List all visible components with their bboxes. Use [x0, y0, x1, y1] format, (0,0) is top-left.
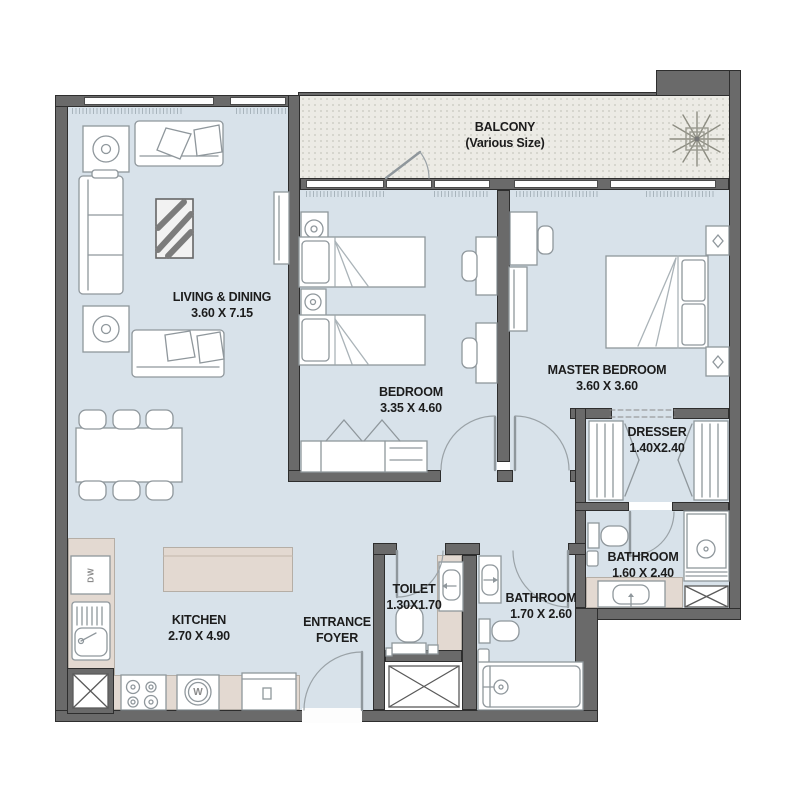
room-name: TOILET: [386, 581, 441, 597]
room-dimensions: (Various Size): [465, 135, 544, 151]
wall-right: [729, 70, 741, 620]
wall-dresser-bath-a: [575, 502, 629, 511]
wall-kitchen-shaft: [67, 668, 114, 714]
room-label-master-bedroom: MASTER BEDROOM 3.60 X 3.60: [548, 362, 667, 394]
window: [610, 180, 716, 188]
room-name: ENTRANCE: [303, 614, 371, 630]
wall-foyer-toilet: [373, 543, 385, 710]
wall-toilet-bath: [462, 555, 477, 710]
window-hatch: [646, 191, 716, 197]
room-name: MASTER BEDROOM: [548, 362, 667, 378]
floor-bathroom: [477, 543, 575, 710]
room-name: BEDROOM: [379, 384, 443, 400]
balcony-door-threshold: [386, 180, 432, 188]
wall-toilet-top-b: [445, 543, 480, 555]
wall-hall-post: [497, 470, 513, 482]
room-name: BATHROOM: [607, 549, 678, 565]
wall-hall-a: [288, 470, 441, 482]
window-hatch: [72, 108, 184, 114]
room-label-balcony: BALCONY (Various Size): [465, 119, 544, 151]
room-label-bedroom: BEDROOM 3.35 X 4.60: [379, 384, 443, 416]
room-label-bathroom: BATHROOM 1.70 X 2.60: [505, 590, 576, 622]
wall-bedroom-master: [497, 190, 510, 462]
window-hatch: [236, 108, 286, 114]
wall-balcony-parapet: [298, 92, 660, 96]
room-name: BATHROOM: [505, 590, 576, 606]
room-label-kitchen: KITCHEN 2.70 X 4.90: [168, 612, 230, 644]
floor-plan: BALCONY (Various Size) LIVING & DINING 3…: [0, 0, 800, 800]
shaft: [389, 666, 459, 707]
wall-living-bedroom: [288, 95, 300, 482]
wall-lower-right: [575, 608, 741, 620]
window: [434, 180, 490, 188]
window: [306, 180, 384, 188]
window: [230, 97, 286, 105]
dishwasher-label: DW: [72, 556, 110, 595]
room-dimensions: FOYER: [303, 630, 371, 646]
wall-bath-top: [568, 543, 586, 555]
room-name: LIVING & DINING: [173, 289, 271, 305]
room-dimensions: 1.40X2.40: [627, 440, 686, 456]
wall-dresser-bath-b: [672, 502, 729, 511]
kitchen-island: [163, 547, 293, 592]
wall-toilet-top-a: [373, 543, 397, 555]
washer-text: W: [193, 687, 202, 698]
window-hatch: [516, 191, 598, 197]
floor-bedroom: [300, 190, 497, 482]
room-dimensions: 3.60 X 7.15: [173, 305, 271, 321]
room-label-living-dining: LIVING & DINING 3.60 X 7.15: [173, 289, 271, 321]
room-label-entrance-foyer: ENTRANCE FOYER: [303, 614, 371, 646]
dishwasher-text: DW: [86, 567, 95, 582]
wall-master-dresser-b: [673, 408, 729, 419]
room-label-master-bathroom: BATHROOM 1.60 X 2.40: [607, 549, 678, 581]
window: [514, 180, 598, 188]
window: [84, 97, 214, 105]
room-name: KITCHEN: [168, 612, 230, 628]
entrance-threshold: [302, 708, 362, 723]
room-dimensions: 2.70 X 4.90: [168, 628, 230, 644]
room-name: BALCONY: [465, 119, 544, 135]
room-dimensions: 1.60 X 2.40: [607, 565, 678, 581]
room-dimensions: 3.60 X 3.60: [548, 378, 667, 394]
room-label-toilet: TOILET 1.30X1.70: [386, 581, 441, 613]
room-dimensions: 3.35 X 4.60: [379, 400, 443, 416]
wall-step-vertical: [575, 608, 598, 722]
window-hatch: [434, 191, 490, 197]
wall-left: [55, 95, 68, 722]
room-dimensions: 1.70 X 2.60: [505, 606, 576, 622]
room-name: DRESSER: [627, 424, 686, 440]
wall-toilet-shaft: [385, 650, 462, 662]
window-hatch: [306, 191, 384, 197]
room-dimensions: 1.30X1.70: [386, 597, 441, 613]
room-label-dresser: DRESSER 1.40X2.40: [627, 424, 686, 456]
washer-label: W: [188, 685, 208, 699]
master-bath-vanity-counter: [586, 577, 683, 608]
